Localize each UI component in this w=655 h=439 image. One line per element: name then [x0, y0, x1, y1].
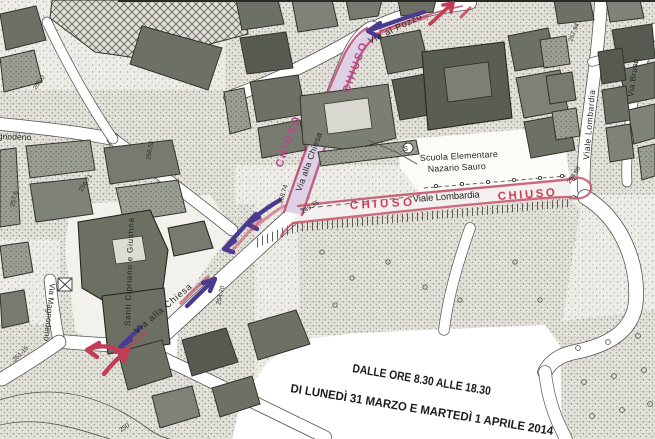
scanned-road-closure-map: Via alla Chiesa Via al Pozzo Viale Lomba…: [0, 0, 655, 439]
map-canvas: Via alla Chiesa Via al Pozzo Viale Lomba…: [0, 0, 655, 439]
s-symbol-text: S: [403, 144, 408, 153]
survey-mark: [58, 278, 72, 291]
street-label-magnodeno-left: Via Magnodeno: [0, 130, 32, 142]
school-building: [422, 42, 512, 130]
